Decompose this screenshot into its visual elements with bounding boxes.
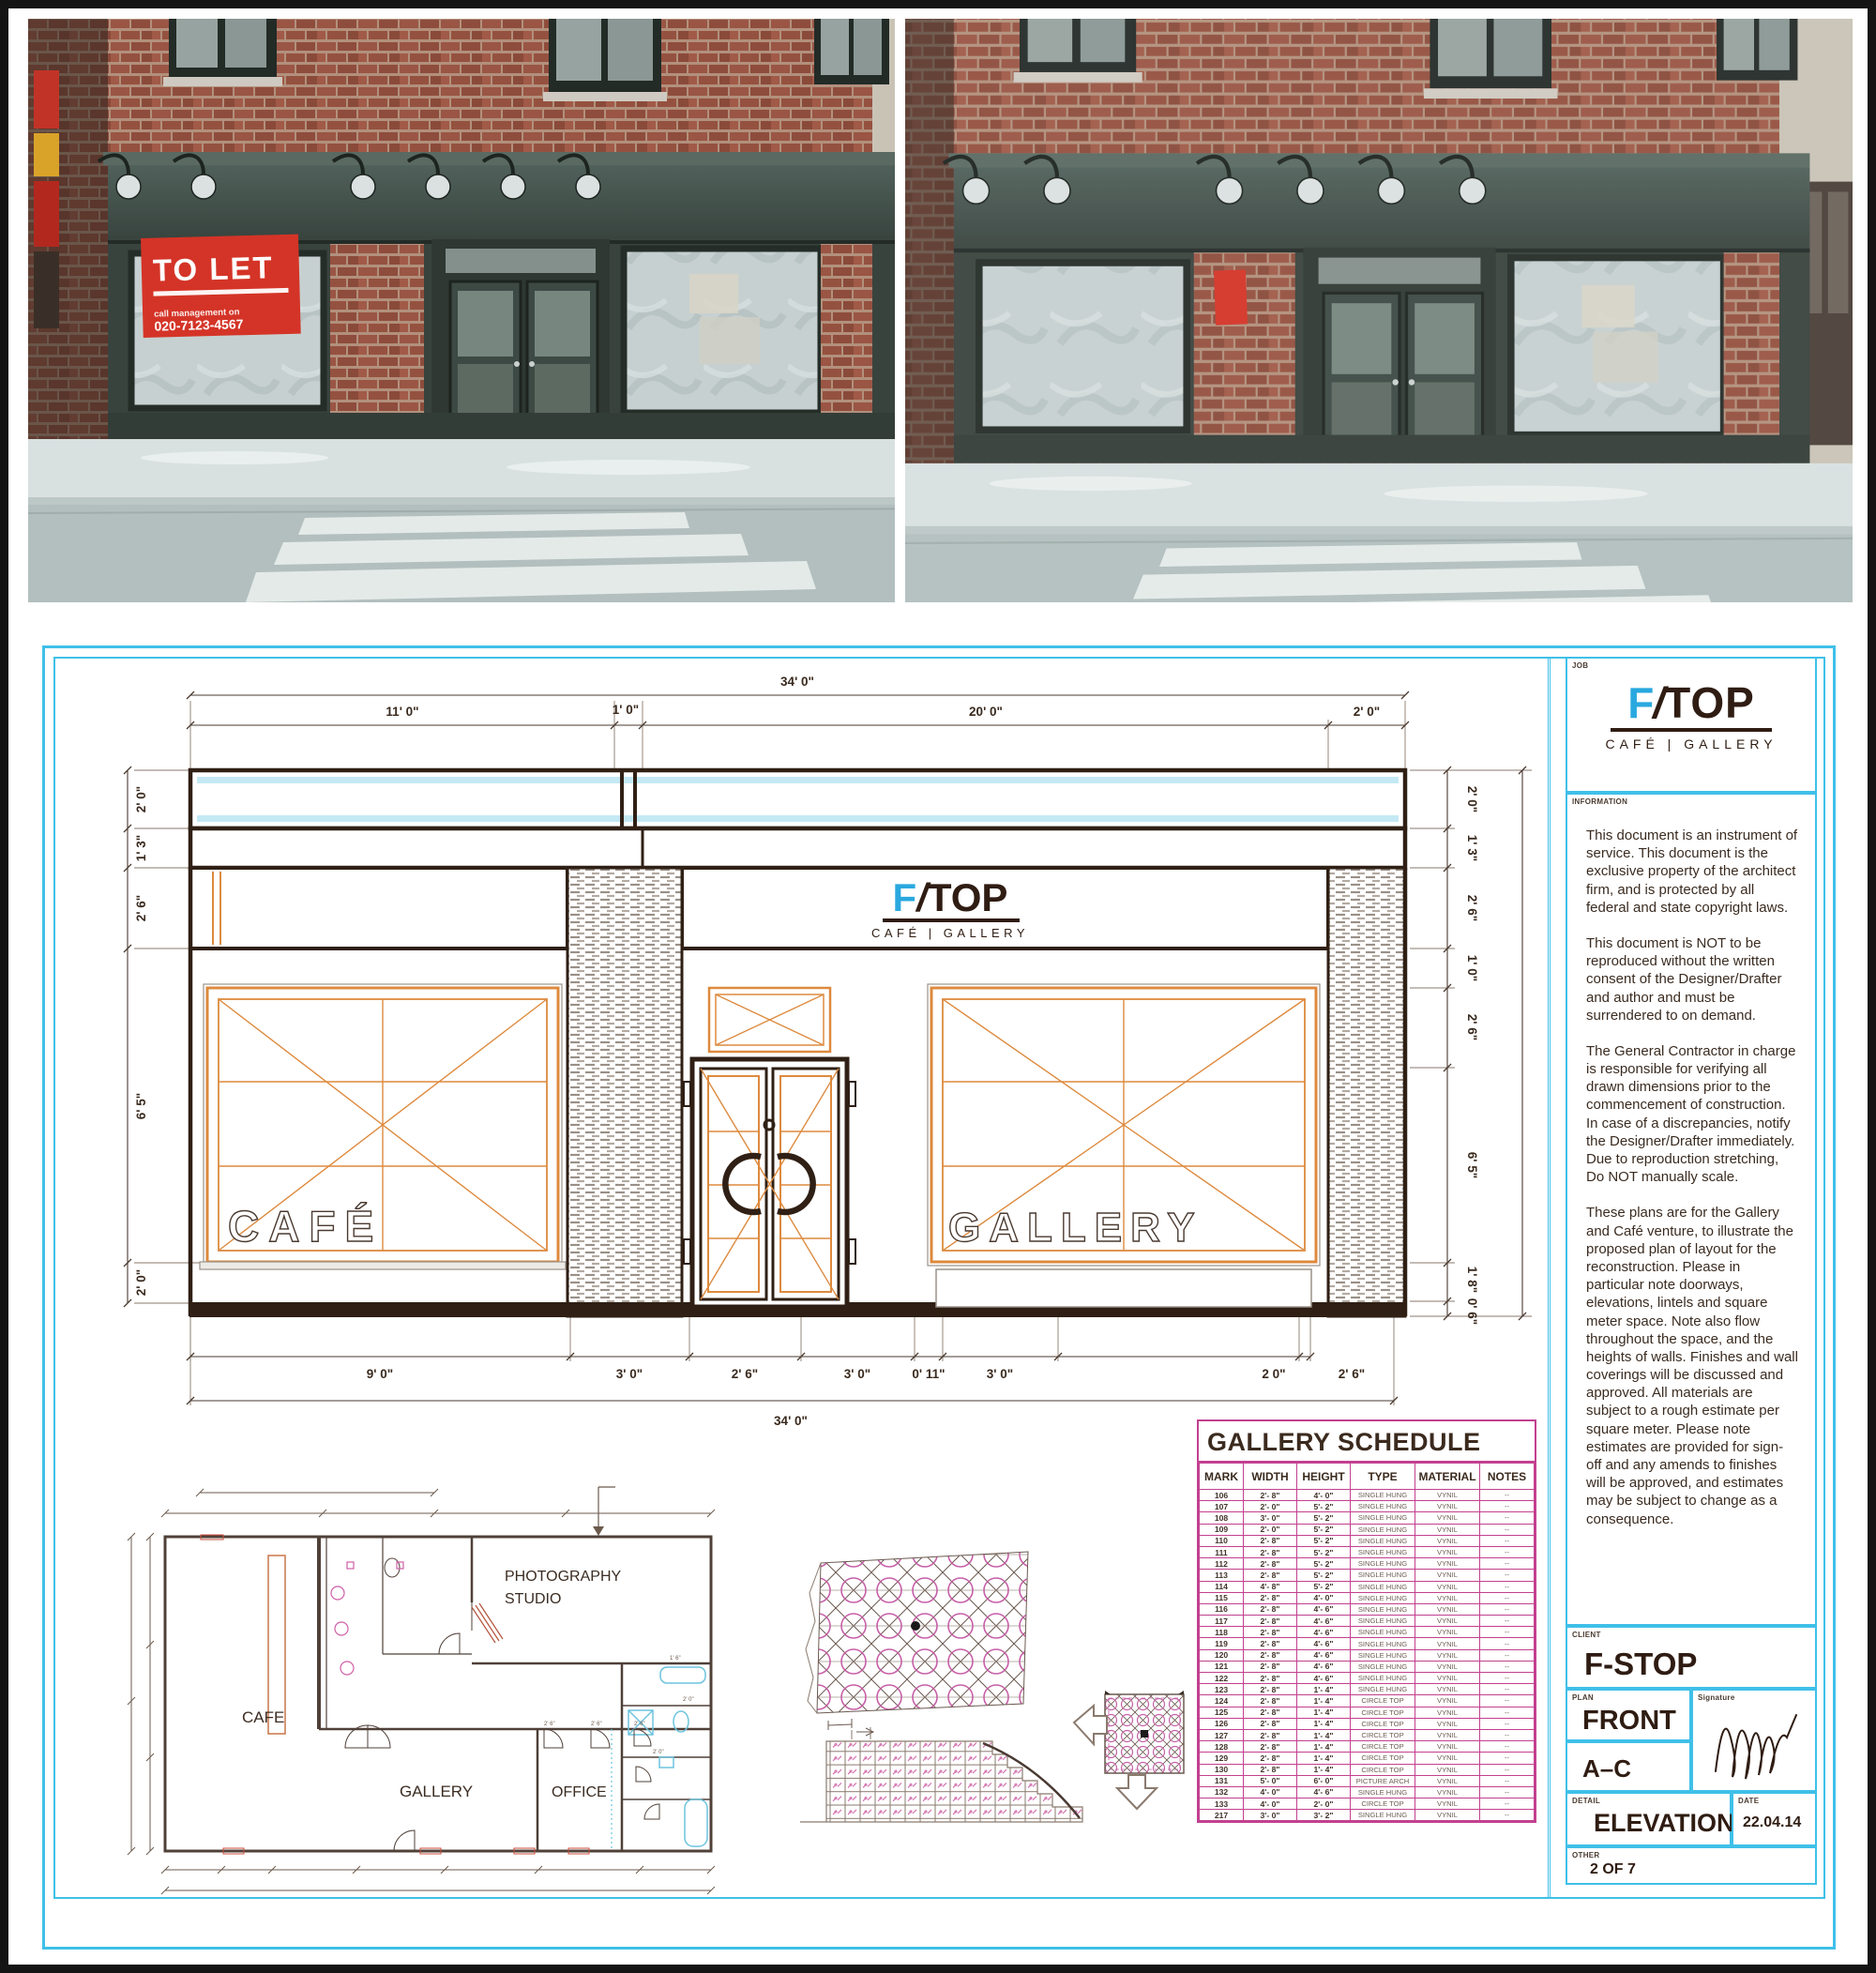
to-let-sign: TO LET call management on 020-7123-4567 [141, 235, 301, 338]
schedule-row: 1162'- 8"4'- 6" SINGLE HUNGVYNIL -- [1200, 1603, 1535, 1615]
dim-label: 2' 6" [1339, 1367, 1365, 1381]
svg-text:CAFÉ | GALLERY: CAFÉ | GALLERY [871, 926, 1029, 940]
dim-label: 3' 0" [844, 1367, 870, 1381]
schedule-row: 1222'- 8"4'- 6" SINGLE HUNGVYNIL -- [1200, 1673, 1535, 1684]
tile-grid-sketch [802, 1552, 1028, 1736]
titleblock-other-cell: OTHER 2 OF 7 [1566, 1846, 1817, 1885]
schedule-row: 1072'- 0"5'- 2" SINGLE HUNGVYNIL -- [1200, 1501, 1535, 1512]
date-label: DATE [1738, 1797, 1759, 1805]
schedule-row: 1302'- 8"1'- 4" CIRCLE TOPVYNIL -- [1200, 1764, 1535, 1775]
drawing-sheet: 34' 0" 11' 0" 1' 0" 20' 0" 2' 0" 9' 0" 3… [42, 645, 1836, 1950]
dim-label: 2' 0" [1354, 705, 1380, 719]
plan-fixture-marks [331, 1562, 403, 1675]
client-value: F-STOP [1584, 1647, 1697, 1682]
dim-label: 6' 5" [1465, 1152, 1479, 1178]
dim-label: 3' 0" [987, 1367, 1013, 1381]
plan-room-label-office: OFFICE [552, 1784, 607, 1800]
logo-rule [1611, 728, 1772, 732]
dim-label: 3' 0" [616, 1367, 643, 1381]
storefront-photo-before: TO LET call management on 020-7123-4567 [28, 19, 895, 602]
info-paragraph: These plans are for the Gallery and Café… [1586, 1204, 1798, 1527]
front-elevation-drawing: 34' 0" 11' 0" 1' 0" 20' 0" 2' 0" 9' 0" 3… [59, 658, 1541, 1465]
dim-label: 2' 6" [732, 1367, 758, 1381]
schedule-row: 1232'- 8"1'- 4" SINGLE HUNGVYNIL -- [1200, 1684, 1535, 1695]
fstop-sign-elevation: F/TOP CAFÉ | GALLERY [871, 875, 1029, 940]
date-value: 22.04.14 [1743, 1814, 1801, 1831]
plan-range-value: A–C [1582, 1754, 1631, 1783]
titleblock-job-cell: JOB F/TOP CAFÉ | GALLERY [1566, 657, 1817, 793]
gallery-schedule-table: GALLERY SCHEDULE MARKWIDTH HEIGHTTYPE MA… [1197, 1419, 1536, 1823]
client-label: CLIENT [1572, 1631, 1601, 1639]
gallery-window-label: GALLERY [948, 1205, 1203, 1251]
to-let-title: TO LET [152, 250, 274, 287]
dim-label: 34' 0" [780, 675, 814, 689]
titleblock-date-cell: DATE 22.04.14 [1732, 1792, 1817, 1846]
dim-label: 1' 0" [613, 703, 639, 717]
titleblock-plan-range-cell: A–C [1566, 1741, 1691, 1792]
svg-text:2' 6": 2' 6" [591, 1722, 602, 1727]
svg-text:2' 6": 2' 6" [544, 1722, 555, 1727]
titleblock-client-cell: CLIENT F-STOP [1566, 1626, 1817, 1689]
floor-plan-drawing: CAFE GALLERY PHOTOGRAPHY STUDIO OFFICE 2… [111, 1476, 767, 1907]
signature-scribble [1695, 1698, 1817, 1792]
schedule-row: 1262'- 8"1'- 4" CIRCLE TOPVYNIL -- [1200, 1718, 1535, 1729]
dim-label: 1' 0" [1465, 955, 1479, 981]
titleblock-detail-cell: DETAIL ELEVATION [1566, 1792, 1732, 1846]
schedule-row: 1132'- 8"5'- 2" SINGLE HUNGVYNIL -- [1200, 1570, 1535, 1581]
schedule-row: 1192'- 8"4'- 6" SINGLE HUNGVYNIL -- [1200, 1638, 1535, 1649]
dim-label: 2' 6" [1465, 1014, 1479, 1040]
logo-tagline: CAFÉ | GALLERY [1567, 736, 1815, 751]
dim-label: 2' 0" [134, 1269, 148, 1296]
schedule-row: 1182'- 8"4'- 6" SINGLE HUNGVYNIL -- [1200, 1627, 1535, 1638]
dim-label: 1' 3" [134, 835, 148, 861]
schedule-row: 2173'- 0"3'- 2" SINGLE HUNGVYNIL -- [1200, 1810, 1535, 1821]
dim-label: 2' 6" [1465, 895, 1479, 921]
other-value: 2 OF 7 [1590, 1861, 1636, 1878]
schedule-row: 1152'- 8"4'- 0" SINGLE HUNGVYNIL -- [1200, 1592, 1535, 1603]
titleblock-divider [1548, 657, 1551, 1897]
cafe-window: CAFÉ [200, 984, 566, 1269]
titleblock-signature-cell: Signature [1691, 1689, 1817, 1792]
schedule-row: 1112'- 8"5'- 2" SINGLE HUNGVYNIL -- [1200, 1546, 1535, 1557]
dim-label: 11' 0" [386, 705, 418, 719]
svg-text:1' 6": 1' 6" [670, 1656, 681, 1662]
storefront-photo-after [905, 19, 1853, 602]
svg-text:2' 0": 2' 0" [653, 1750, 664, 1755]
detail-value: ELEVATION [1594, 1809, 1735, 1838]
schedule-title: GALLERY SCHEDULE [1199, 1421, 1535, 1463]
schedule-row: 1062'- 8"4'- 0" SINGLE HUNGVYNIL -- [1200, 1490, 1535, 1501]
schedule-row: 1272'- 8"1'- 4" CIRCLE TOPVYNIL -- [1200, 1729, 1535, 1740]
dim-label: 20' 0" [969, 705, 1003, 719]
dim-label: 2' 0" [134, 786, 148, 812]
schedule-row: 1092'- 0"5'- 2" SINGLE HUNGVYNIL -- [1200, 1524, 1535, 1535]
schedule-row: 1334'- 0"2'- 0" CIRCLE TOPVYNIL -- [1200, 1798, 1535, 1810]
cafe-counter [268, 1556, 285, 1734]
drawing-sheet-page: TO LET call management on 020-7123-4567 [0, 0, 1876, 1973]
dim-label: 34' 0" [774, 1414, 808, 1428]
other-label: OTHER [1572, 1851, 1600, 1859]
detail-label: DETAIL [1572, 1797, 1600, 1805]
schedule-row: 1242'- 8"1'- 4" CIRCLE TOPVYNIL -- [1200, 1695, 1535, 1707]
schedule-row: 1324'- 0"4'- 6" SINGLE HUNGVYNIL -- [1200, 1786, 1535, 1798]
fstop-logo: F/TOP CAFÉ | GALLERY [1567, 681, 1815, 751]
dim-label: 1' 8" [1465, 1267, 1479, 1293]
dim-label: 2' 6" [134, 895, 148, 921]
tile-direction-sketch [1074, 1691, 1184, 1809]
information-text: This document is an instrument of servic… [1567, 795, 1815, 1528]
job-label: JOB [1572, 661, 1588, 670]
info-paragraph: The General Contractor in charge is resp… [1586, 1042, 1798, 1187]
schedule-row: 1102'- 8"5'- 2" SINGLE HUNGVYNIL -- [1200, 1535, 1535, 1546]
schedule-row: 1172'- 8"4'- 6" SINGLE HUNGVYNIL -- [1200, 1616, 1535, 1627]
to-let-phone: 020-7123-4567 [154, 316, 244, 333]
gallery-window: GALLERY [928, 984, 1320, 1307]
info-paragraph: This document is NOT to be reproduced wi… [1586, 934, 1798, 1024]
entry-door-elevation [684, 988, 855, 1307]
cafe-window-label: CAFÉ [228, 1202, 383, 1251]
dim-label: 2' 0" [1465, 786, 1479, 812]
signature-label: Signature [1698, 1693, 1735, 1702]
plan-room-label-cafe: CAFE [242, 1708, 284, 1726]
dim-label: 9' 0" [367, 1367, 393, 1381]
title-block: JOB F/TOP CAFÉ | GALLERY INFORMATION Thi… [1566, 657, 1817, 1885]
information-label: INFORMATION [1572, 797, 1627, 806]
schedule-row: 1282'- 8"1'- 4" CIRCLE TOPVYNIL -- [1200, 1741, 1535, 1753]
schedule-header-row: MARKWIDTH HEIGHTTYPE MATERIALNOTES [1200, 1464, 1535, 1490]
plan-label: PLAN [1572, 1693, 1594, 1702]
dim-label: 2 0" [1262, 1367, 1285, 1381]
svg-text:F/TOP: F/TOP [893, 875, 1008, 919]
titleblock-plan-cell: PLAN FRONT [1566, 1689, 1691, 1741]
dim-label: 6' 5" [134, 1093, 148, 1119]
svg-text:2' 0": 2' 0" [683, 1697, 694, 1703]
schedule-row: 1292'- 8"1'- 4" CIRCLE TOPVYNIL -- [1200, 1753, 1535, 1764]
schedule-row: 1202'- 8"4'- 6" SINGLE HUNGVYNIL -- [1200, 1649, 1535, 1661]
schedule-row: 1315'- 0"6'- 0" PICTURE ARCHVYNIL -- [1200, 1775, 1535, 1786]
plan-room-label-studio1: PHOTOGRAPHY [505, 1569, 622, 1585]
schedule-row: 1122'- 8"5'- 2" SINGLE HUNGVYNIL -- [1200, 1558, 1535, 1570]
ceiling-tile-detail-sketches [800, 1537, 1203, 1837]
plan-room-label-gallery: GALLERY [400, 1783, 473, 1800]
schedule-row: 1212'- 8"4'- 6" SINGLE HUNGVYNIL -- [1200, 1661, 1535, 1672]
schedule-row: 1144'- 8"5'- 2" SINGLE HUNGVYNIL -- [1200, 1581, 1535, 1592]
titleblock-information-cell: INFORMATION This document is an instrume… [1566, 793, 1817, 1626]
plan-value: FRONT [1582, 1706, 1676, 1737]
dim-label: 1' 3" [1465, 835, 1479, 861]
dim-label: 24' 0" [1538, 1025, 1541, 1060]
stepped-tile-sketch [800, 1727, 1082, 1822]
dim-label: 0' 11" [912, 1367, 945, 1381]
plan-room-label-studio2: STUDIO [505, 1591, 561, 1607]
svg-text:2' 6": 2' 6" [634, 1722, 645, 1727]
info-paragraph: This document is an instrument of servic… [1586, 827, 1798, 917]
dim-label: 0' 6" [1465, 1298, 1479, 1325]
schedule-row: 1083'- 0"5'- 2" SINGLE HUNGVYNIL -- [1200, 1512, 1535, 1524]
schedule-row: 1252'- 8"1'- 4" CIRCLE TOPVYNIL -- [1200, 1707, 1535, 1718]
